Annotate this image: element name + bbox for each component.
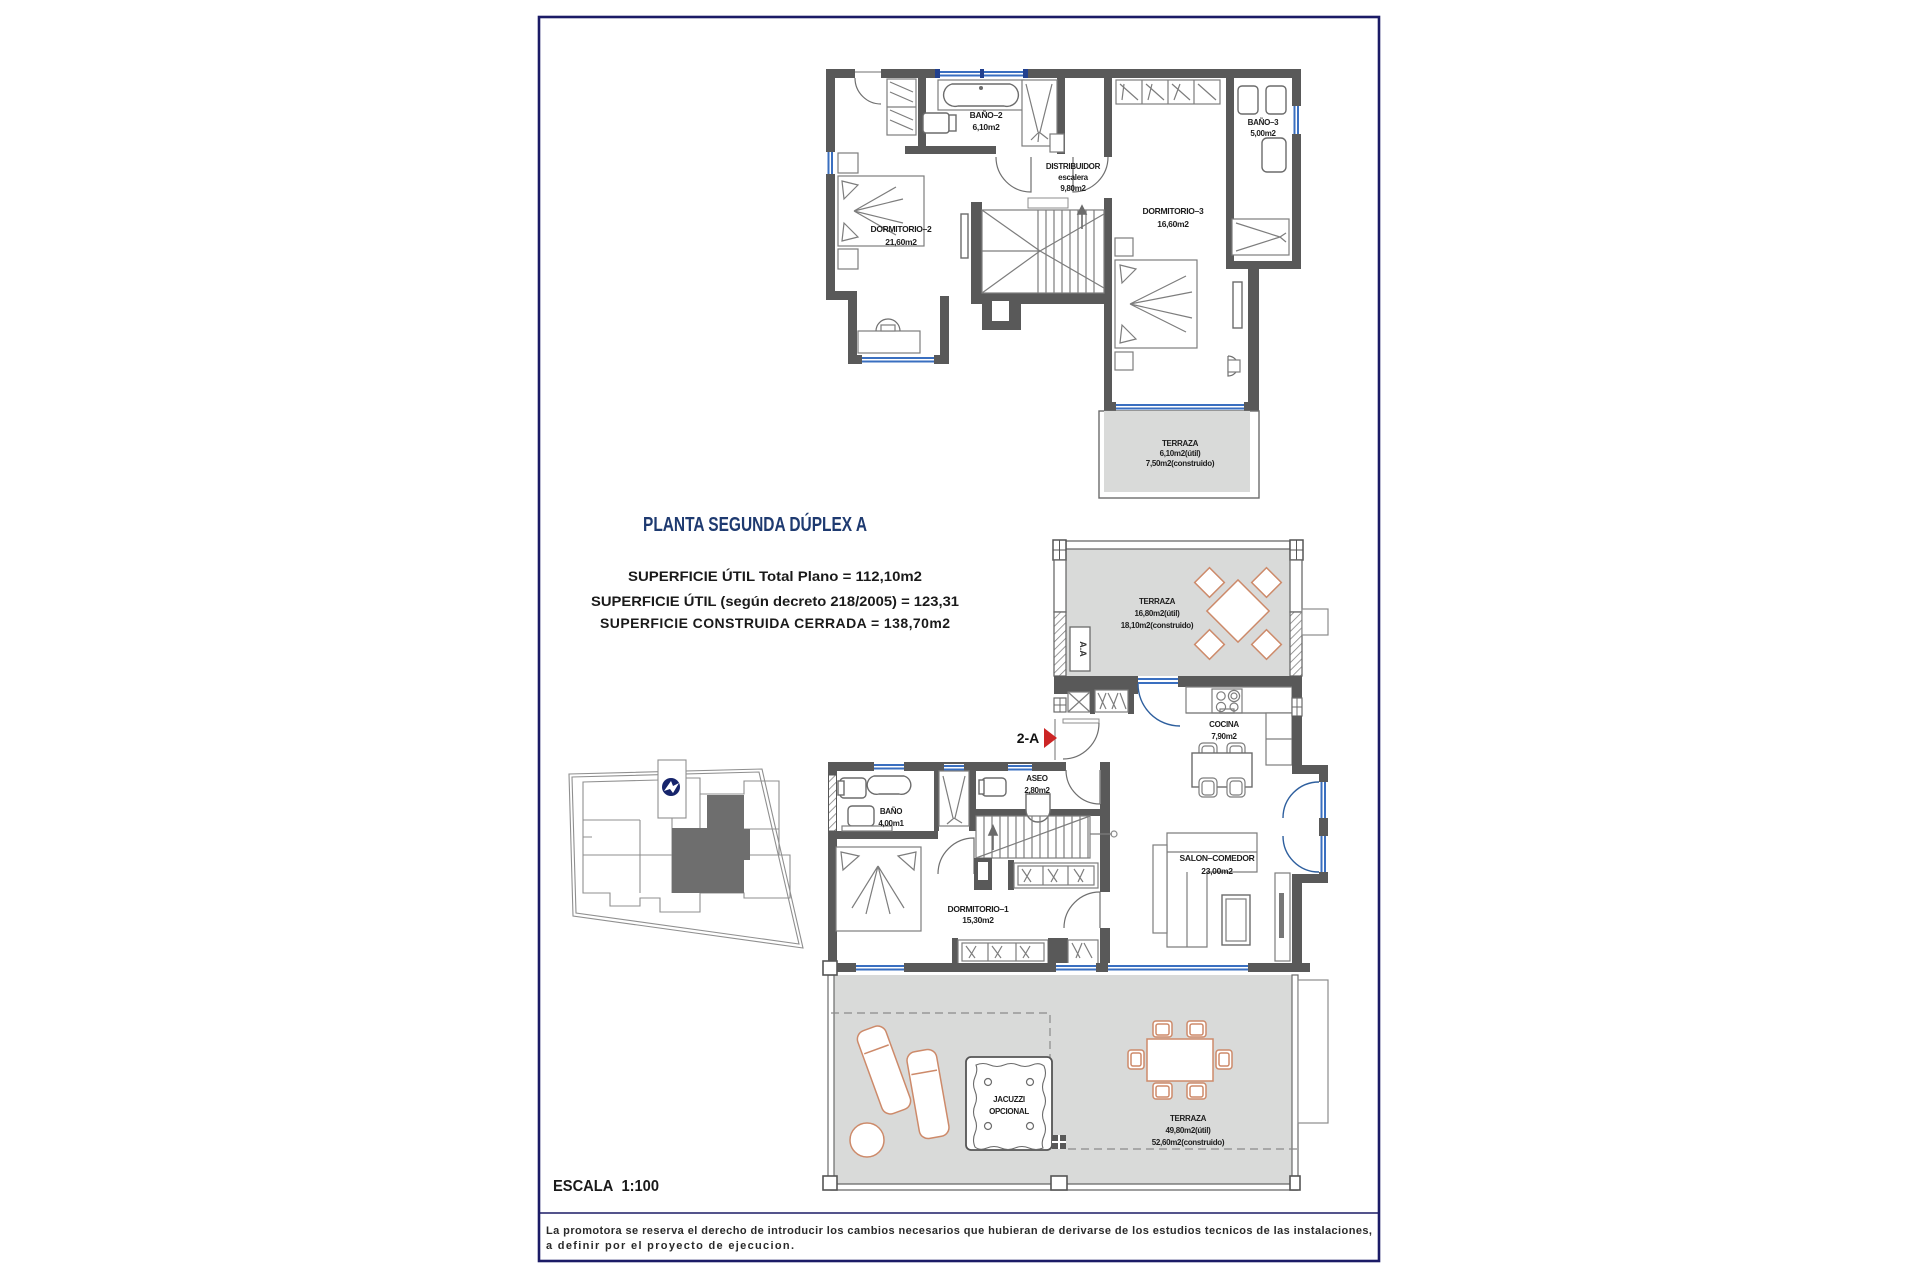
svg-text:ESCALA 1:100: ESCALA 1:100 [553,1178,659,1195]
svg-text:2-A: 2-A [1017,730,1040,746]
svg-text:49,80m2(útil): 49,80m2(útil) [1165,1126,1211,1135]
svg-text:a definir por el proyecto de e: a definir por el proyecto de ejecucion. [546,1240,794,1252]
svg-text:TERRAZA: TERRAZA [1170,1114,1207,1123]
svg-text:SUPERFICIE ÚTIL (según decreto: SUPERFICIE ÚTIL (según decreto 218/2005)… [591,592,959,609]
svg-text:escalera: escalera [1058,173,1088,182]
svg-text:PLANTA SEGUNDA DÚPLEX A: PLANTA SEGUNDA DÚPLEX A [643,512,867,536]
svg-text:DORMITORIO–1: DORMITORIO–1 [948,904,1010,914]
svg-text:9,80m2: 9,80m2 [1060,184,1086,193]
svg-text:16,80m2(útil): 16,80m2(útil) [1134,609,1180,618]
svg-text:DISTRIBUIDOR: DISTRIBUIDOR [1046,162,1101,171]
svg-text:La promotora se reserva el der: La promotora se reserva el derecho de in… [546,1225,1372,1237]
svg-text:TERRAZA: TERRAZA [1139,597,1176,606]
svg-text:23,00m2: 23,00m2 [1201,866,1233,876]
svg-text:2,80m2: 2,80m2 [1024,786,1050,795]
svg-text:7,90m2: 7,90m2 [1211,732,1237,741]
svg-text:18,10m2(construido): 18,10m2(construido) [1121,621,1194,630]
svg-text:BAÑO–2: BAÑO–2 [970,110,1003,120]
svg-text:4,00m1: 4,00m1 [878,819,904,828]
svg-text:DORMITORIO–3: DORMITORIO–3 [1143,206,1205,216]
svg-text:ASEO: ASEO [1026,774,1048,783]
svg-text:BAÑO: BAÑO [880,807,902,816]
svg-text:TERRAZA: TERRAZA [1162,439,1199,448]
svg-text:52,60m2(construido): 52,60m2(construido) [1152,1138,1225,1147]
svg-text:16,60m2: 16,60m2 [1157,219,1189,229]
svg-text:21,60m2: 21,60m2 [885,237,917,247]
svg-text:6,10m2(útil): 6,10m2(útil) [1160,449,1201,458]
svg-text:7,50m2(construido): 7,50m2(construido) [1146,459,1215,468]
svg-text:BAÑO–3: BAÑO–3 [1248,118,1280,127]
svg-text:6,10m2: 6,10m2 [972,122,1000,132]
svg-text:OPCIONAL: OPCIONAL [989,1107,1029,1116]
svg-text:SUPERFICIE ÚTIL Total Plano =: SUPERFICIE ÚTIL Total Plano = 112,10m2 [628,567,922,584]
svg-text:SALON–COMEDOR: SALON–COMEDOR [1180,853,1255,863]
svg-text:JACUZZI: JACUZZI [993,1095,1025,1104]
svg-text:15,30m2: 15,30m2 [962,915,994,925]
svg-text:DORMITORIO–2: DORMITORIO–2 [871,224,933,234]
svg-text:COCINA: COCINA [1209,720,1239,729]
svg-text:SUPERFICIE CONSTRUIDA CERRADA: SUPERFICIE CONSTRUIDA CERRADA = 138,70m2 [600,615,950,631]
svg-text:A.A: A.A [1078,641,1088,657]
svg-text:5,00m2: 5,00m2 [1250,129,1276,138]
